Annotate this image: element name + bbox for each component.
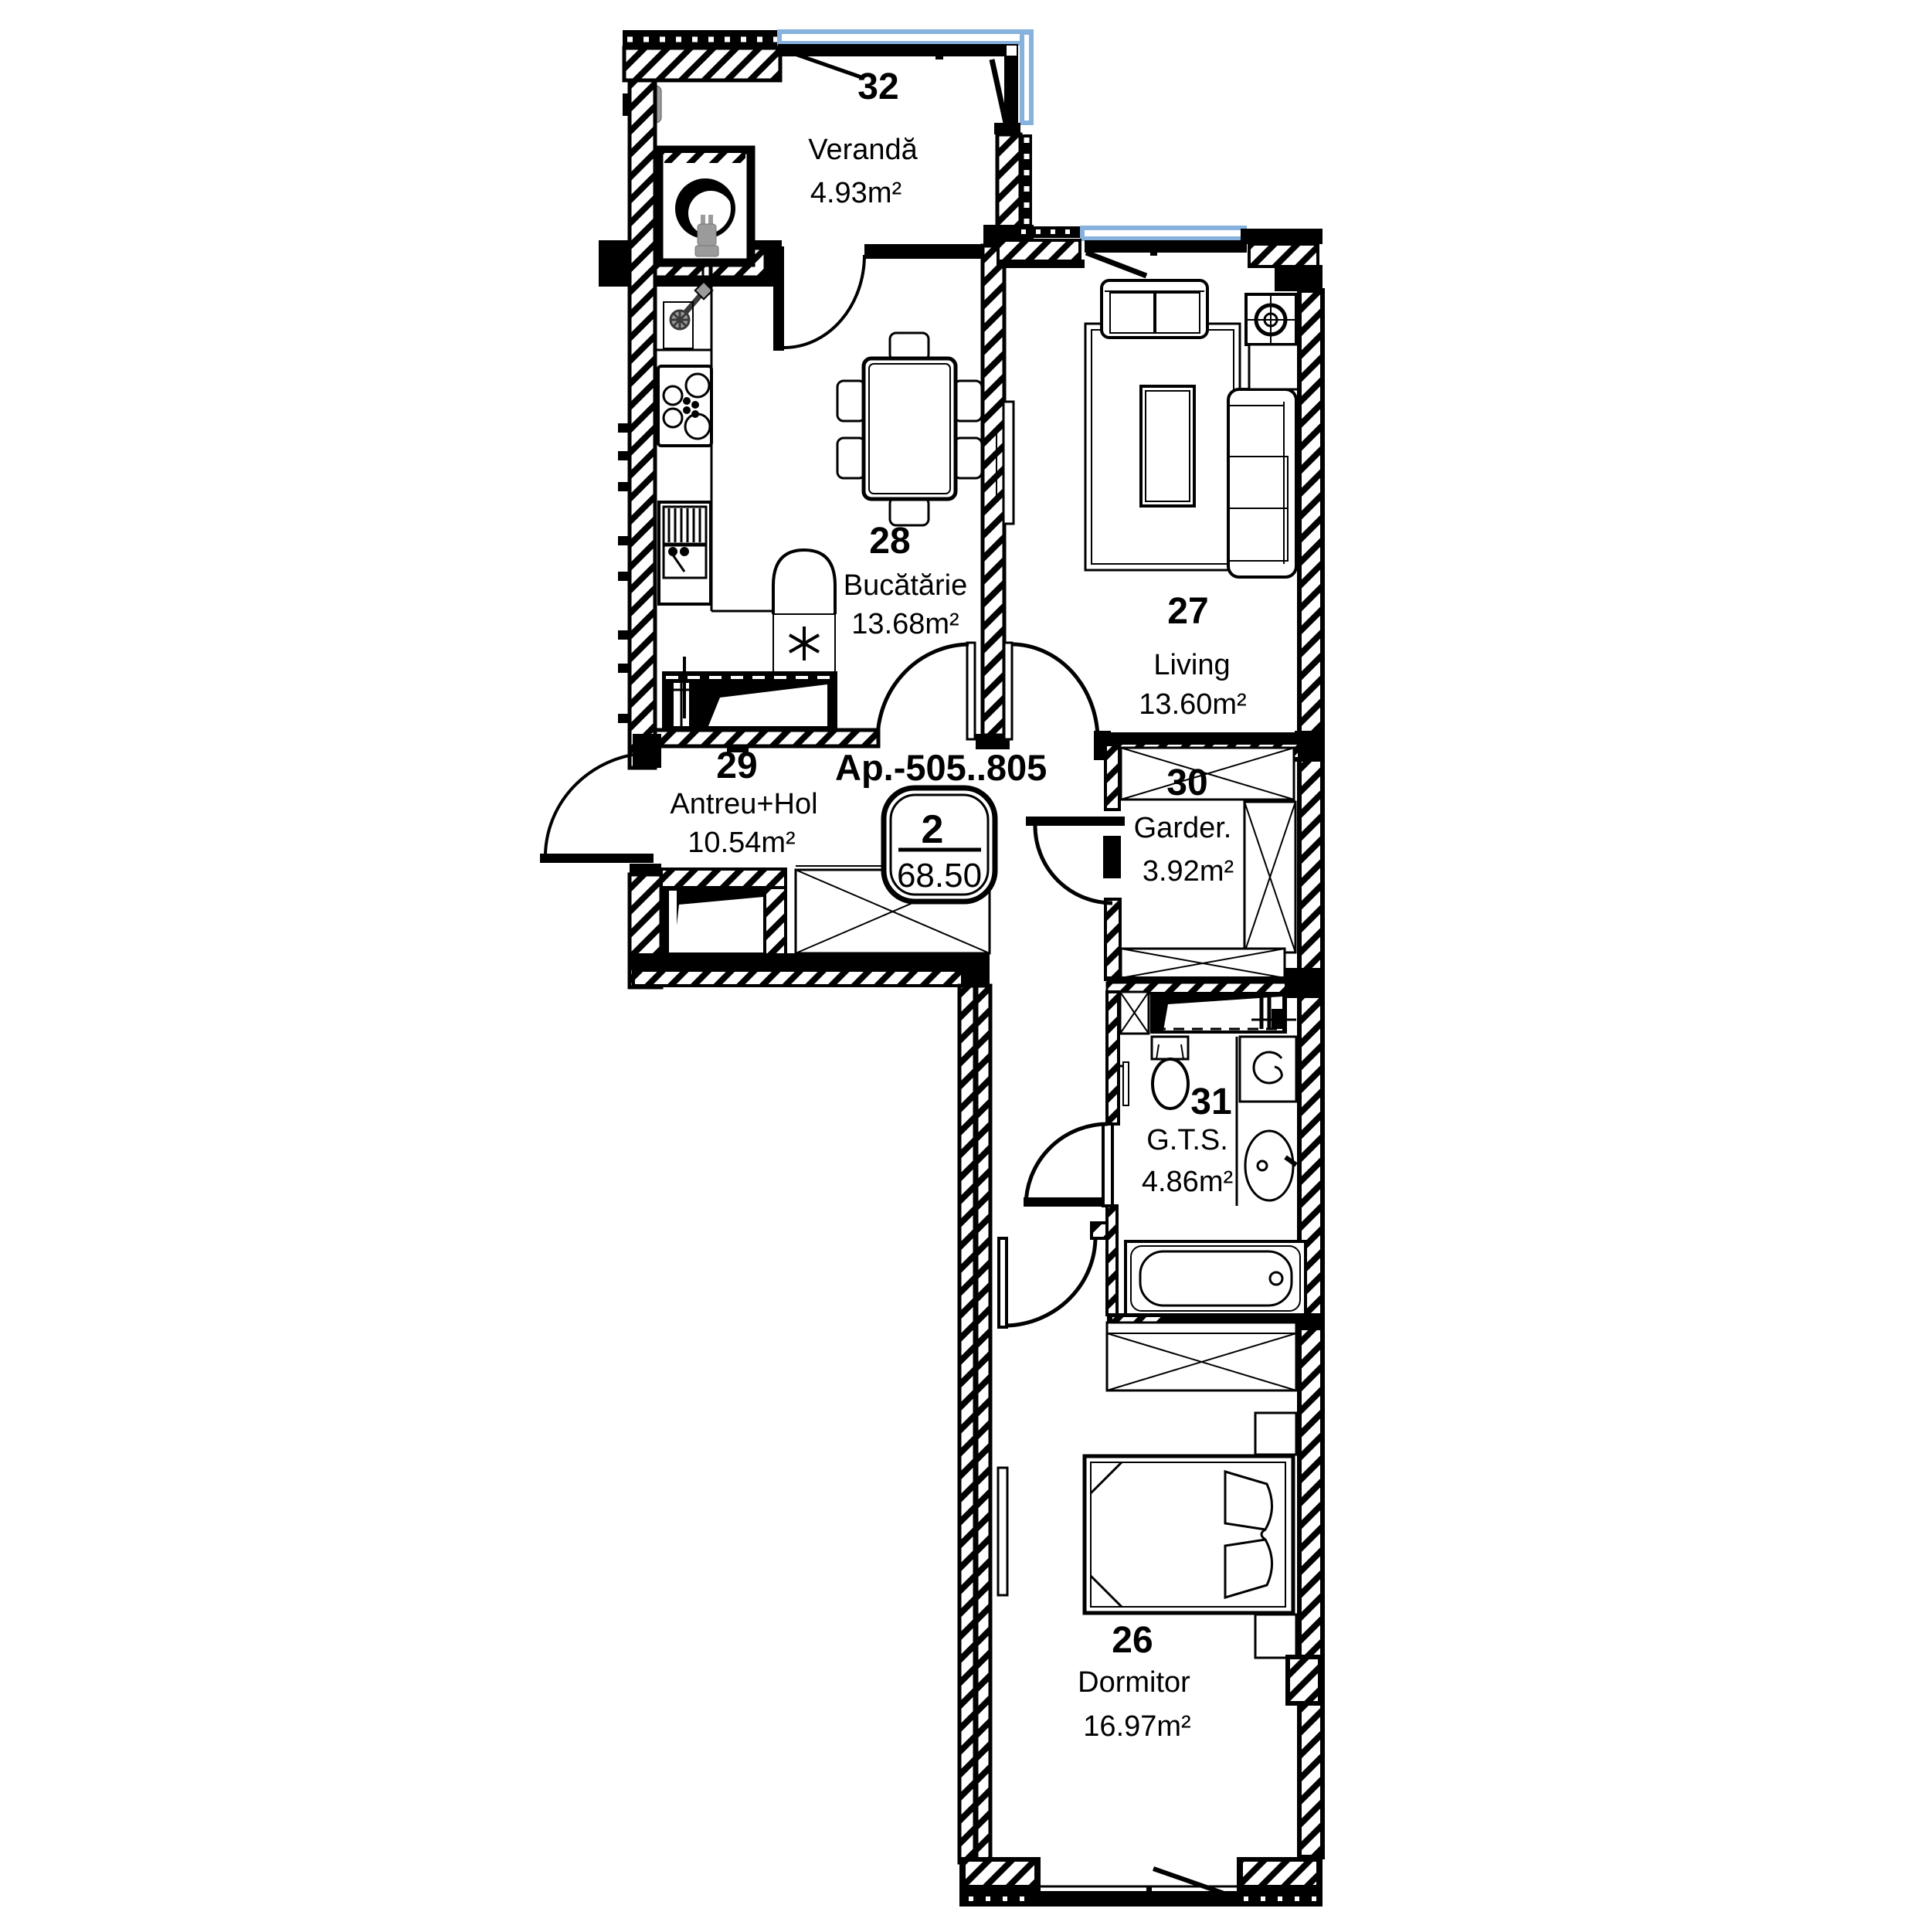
svg-text:29: 29 [716,745,757,786]
svg-text:30: 30 [1166,762,1207,803]
svg-text:Verandă: Verandă [808,134,918,166]
svg-text:13.68m²: 13.68m² [851,608,959,640]
svg-text:68.50: 68.50 [897,857,982,895]
svg-text:Dormitor: Dormitor [1078,1666,1190,1699]
svg-text:32: 32 [857,66,898,107]
svg-text:10.54m²: 10.54m² [688,827,795,859]
svg-text:Antreu+Hol: Antreu+Hol [670,788,817,820]
svg-text:4.93m²: 4.93m² [810,177,901,209]
svg-text:26: 26 [1112,1620,1153,1661]
svg-text:Bucătărie: Bucătărie [844,569,968,602]
svg-text:Garder.: Garder. [1134,812,1232,844]
svg-text:16.97m²: 16.97m² [1083,1710,1190,1743]
svg-text:13.60m²: 13.60m² [1139,688,1246,721]
svg-text:4.86m²: 4.86m² [1142,1166,1233,1198]
svg-text:28: 28 [869,521,910,562]
svg-text:G.T.S.: G.T.S. [1146,1124,1228,1156]
svg-text:3.92m²: 3.92m² [1143,855,1234,888]
svg-text:Ap.-505..805: Ap.-505..805 [835,747,1047,788]
svg-text:27: 27 [1167,591,1208,632]
svg-text:Living: Living [1153,649,1230,681]
svg-text:31: 31 [1190,1081,1231,1122]
svg-text:2: 2 [922,807,944,852]
